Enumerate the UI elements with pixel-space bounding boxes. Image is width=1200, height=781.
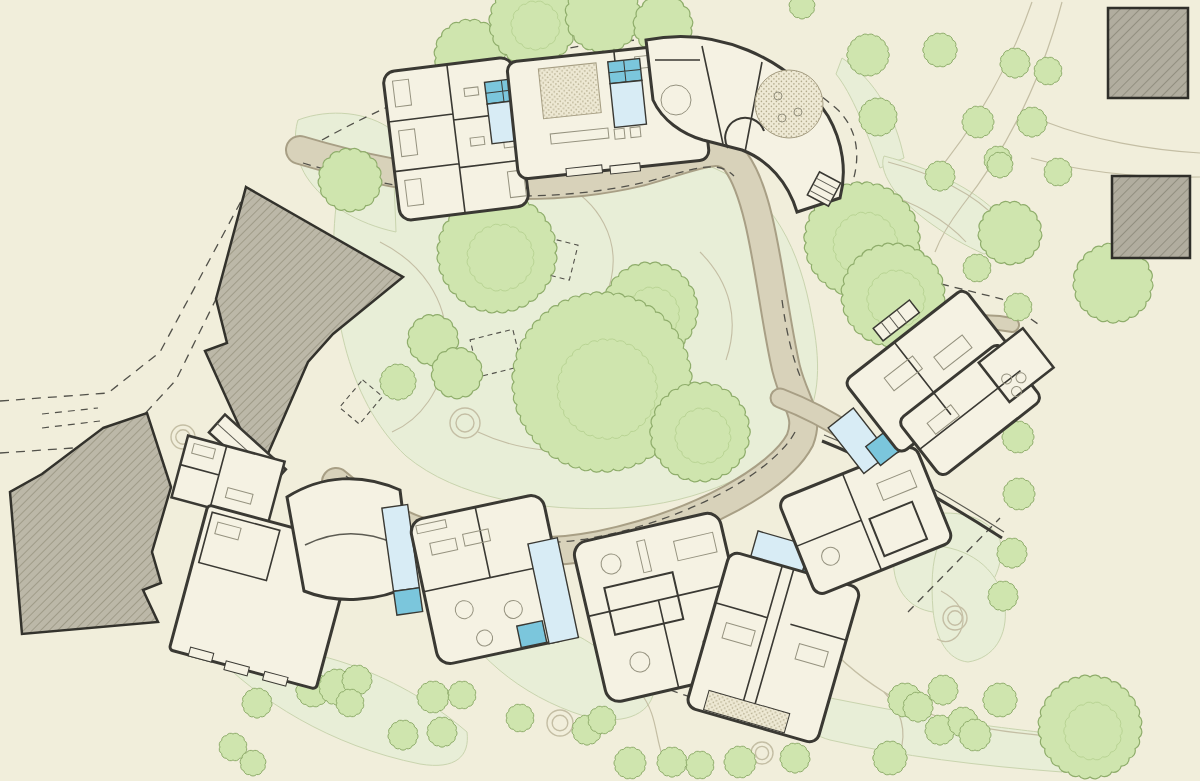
glazed-link-light — [610, 80, 646, 127]
bush — [987, 152, 1013, 178]
bush — [962, 106, 994, 138]
hall-stippled-court — [538, 63, 601, 119]
bush — [506, 704, 534, 732]
bush — [928, 675, 958, 705]
bush — [588, 706, 616, 734]
bush — [724, 746, 756, 778]
bush — [780, 743, 810, 773]
bush — [380, 364, 416, 400]
bush — [1017, 107, 1047, 137]
bush — [923, 33, 957, 67]
bush — [959, 719, 991, 751]
bush — [1000, 48, 1030, 78]
site-plan-drawing — [0, 0, 1200, 781]
bush — [336, 689, 364, 717]
tree-medium — [978, 201, 1042, 264]
bush — [847, 34, 890, 76]
bush — [963, 254, 991, 282]
bush — [1034, 57, 1062, 85]
plan-layers — [0, 0, 1200, 781]
bush — [873, 741, 907, 775]
glazed-link-dark — [517, 621, 547, 648]
bush — [427, 717, 457, 747]
patio-stippled — [755, 70, 823, 138]
tree-medium — [318, 148, 382, 211]
site-plan-canvas — [0, 0, 1200, 781]
bush — [983, 683, 1017, 717]
bush — [903, 692, 933, 722]
bush — [997, 538, 1027, 568]
bush — [1044, 158, 1072, 186]
bush — [417, 681, 449, 713]
ancillary-block-south — [1112, 176, 1190, 258]
bush — [242, 688, 272, 718]
bush — [614, 747, 646, 779]
tree-canopy — [1038, 675, 1142, 779]
bush — [388, 720, 418, 750]
bush — [1004, 293, 1032, 321]
glazed-link-dark — [394, 588, 423, 615]
tree-canopy — [650, 382, 751, 482]
bush — [988, 581, 1018, 611]
bush — [657, 747, 687, 777]
bush — [240, 750, 266, 776]
tree-large — [650, 382, 751, 482]
bush — [448, 681, 476, 709]
bush — [1003, 478, 1035, 510]
tree-canopy — [318, 148, 382, 211]
ancillary-block-north — [1108, 8, 1188, 98]
tree-canopy — [978, 201, 1042, 264]
bush — [925, 161, 955, 191]
bush — [686, 751, 714, 779]
tree-large — [1038, 675, 1142, 779]
